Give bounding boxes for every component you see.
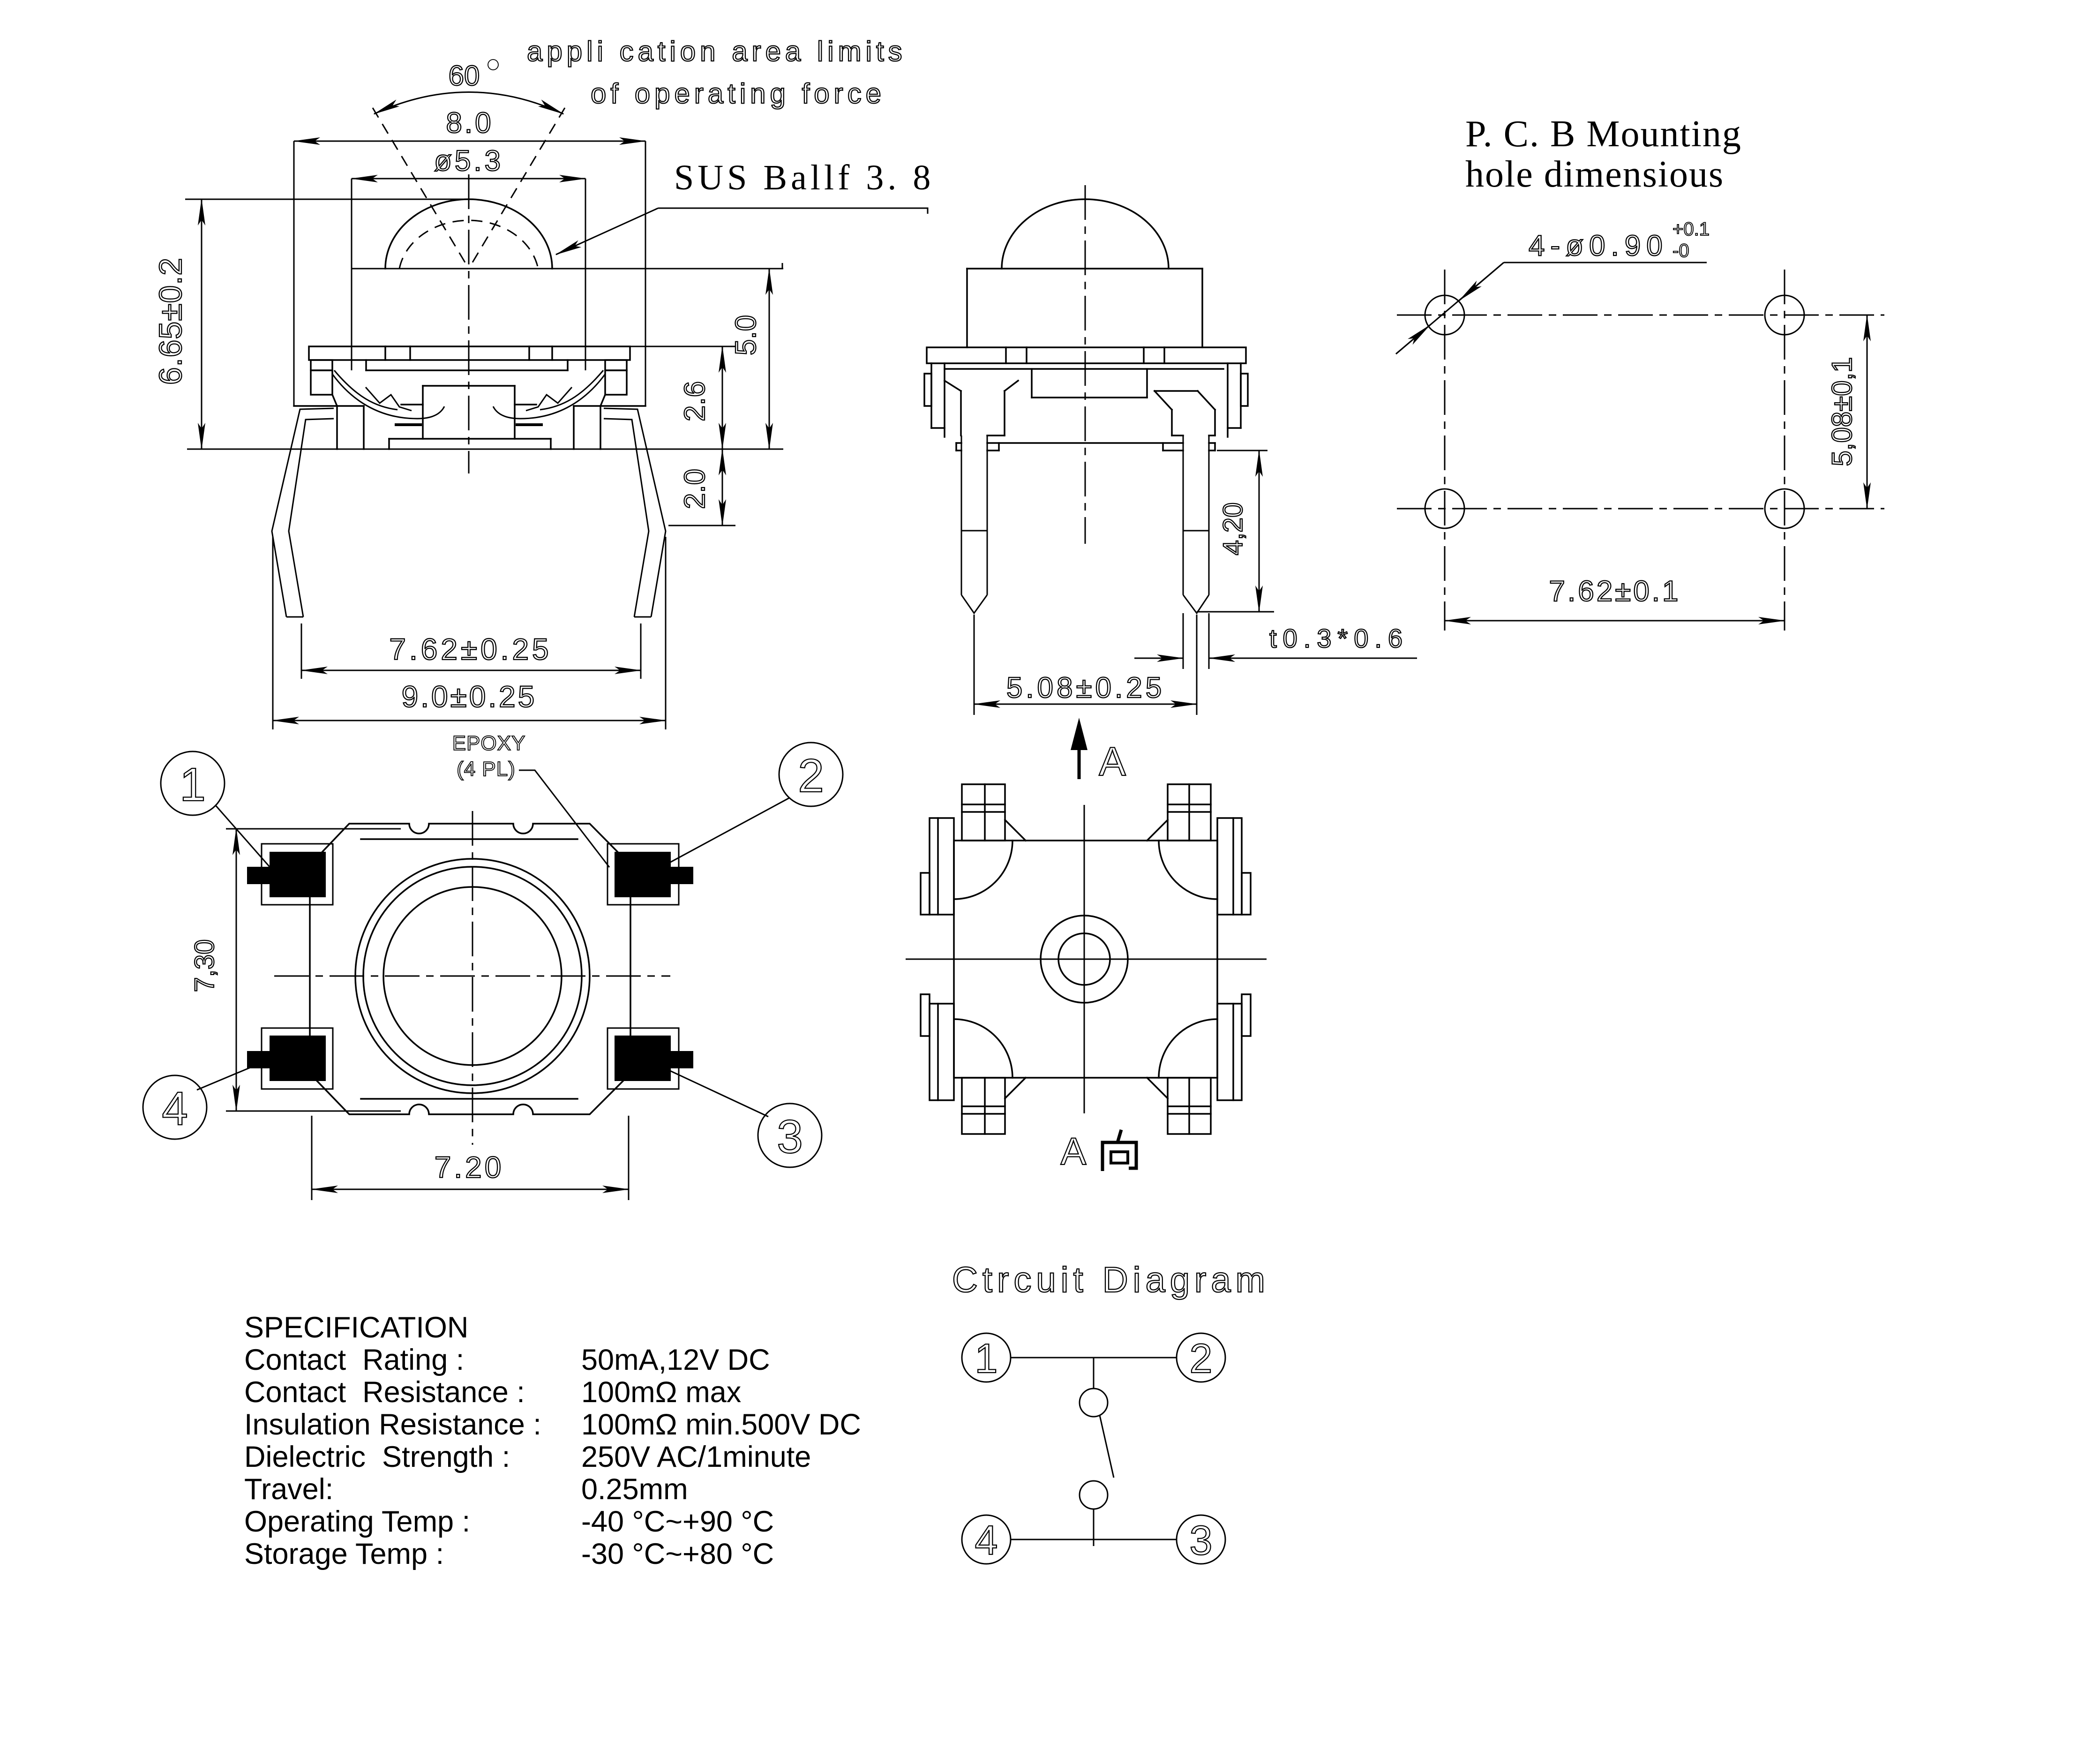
svg-text:250V AC/1minute: 250V AC/1minute — [581, 1441, 811, 1473]
svg-text:3: 3 — [777, 1111, 803, 1163]
svg-text:50mA,12V DC: 50mA,12V DC — [581, 1344, 770, 1376]
svg-text:Storage Temp :: Storage Temp : — [244, 1538, 444, 1570]
svg-text:7.62±0.25: 7.62±0.25 — [389, 632, 552, 666]
svg-text:SUS Ballf 3. 8: SUS Ballf 3. 8 — [674, 158, 934, 197]
svg-text:1: 1 — [180, 758, 206, 811]
svg-text:4: 4 — [975, 1517, 998, 1563]
svg-text:6.65±0.2: 6.65±0.2 — [153, 257, 188, 385]
svg-text:7.62±0.1: 7.62±0.1 — [1549, 575, 1681, 608]
svg-text:-0: -0 — [1672, 240, 1689, 261]
svg-text:P. C. B Mounting: P. C. B Mounting — [1465, 113, 1742, 155]
svg-text:5,08±0,1: 5,08±0,1 — [1826, 357, 1858, 466]
svg-text:2.0: 2.0 — [679, 469, 711, 509]
svg-text:Operating Temp :: Operating Temp : — [244, 1505, 470, 1538]
svg-text:4,20: 4,20 — [1218, 503, 1248, 556]
svg-text:(4 PL): (4 PL) — [457, 758, 516, 781]
svg-text:9.0±0.25: 9.0±0.25 — [402, 680, 537, 713]
svg-text:-40 °C~+90 °C: -40 °C~+90 °C — [581, 1505, 774, 1538]
svg-text:2.6: 2.6 — [679, 381, 711, 421]
svg-text:Ctrcuit Diagram: Ctrcuit Diagram — [952, 1260, 1270, 1300]
svg-text:Travel:: Travel: — [244, 1473, 333, 1506]
svg-text:100mΩ min.500V DC: 100mΩ min.500V DC — [581, 1408, 861, 1441]
svg-text:8.0: 8.0 — [446, 107, 493, 139]
svg-text:2: 2 — [1190, 1335, 1213, 1382]
svg-text:t0.3*0.6: t0.3*0.6 — [1269, 623, 1409, 653]
svg-text:7.20: 7.20 — [435, 1150, 504, 1184]
svg-text:hole dimensious: hole dimensious — [1465, 154, 1724, 195]
svg-text:SPECIFICATION: SPECIFICATION — [244, 1311, 468, 1344]
svg-text:60: 60 — [449, 60, 480, 91]
svg-text:-30 °C~+80 °C: -30 °C~+80 °C — [581, 1538, 774, 1570]
svg-text:EPOXY: EPOXY — [452, 732, 526, 755]
svg-text:Contact Resistance :: Contact Resistance : — [244, 1376, 525, 1409]
svg-text:100mΩ max: 100mΩ max — [581, 1376, 741, 1409]
svg-text:5.08±0.25: 5.08±0.25 — [1006, 672, 1165, 704]
svg-text:4-ø0.90: 4-ø0.90 — [1529, 230, 1668, 262]
svg-text:A: A — [1061, 1130, 1087, 1173]
svg-text:appli cation area limits: appli cation area limits — [527, 36, 907, 67]
svg-text:1: 1 — [975, 1335, 998, 1382]
svg-text:0.25mm: 0.25mm — [581, 1473, 688, 1506]
svg-text:Dielectric Strength :: Dielectric Strength : — [244, 1441, 510, 1473]
svg-text:2: 2 — [798, 750, 824, 802]
svg-text:5.0: 5.0 — [730, 315, 762, 355]
svg-text:3: 3 — [1190, 1517, 1213, 1563]
svg-text:of operating force: of operating force — [591, 78, 885, 109]
svg-text:Contact Rating :: Contact Rating : — [244, 1344, 464, 1376]
svg-text:4: 4 — [162, 1082, 188, 1135]
svg-text:Insulation Resistance :: Insulation Resistance : — [244, 1408, 541, 1441]
svg-text:+0.1: +0.1 — [1672, 219, 1710, 240]
svg-text:ø5.3: ø5.3 — [434, 145, 503, 177]
svg-text:7,30: 7,30 — [189, 939, 220, 992]
svg-text:A: A — [1099, 739, 1126, 784]
